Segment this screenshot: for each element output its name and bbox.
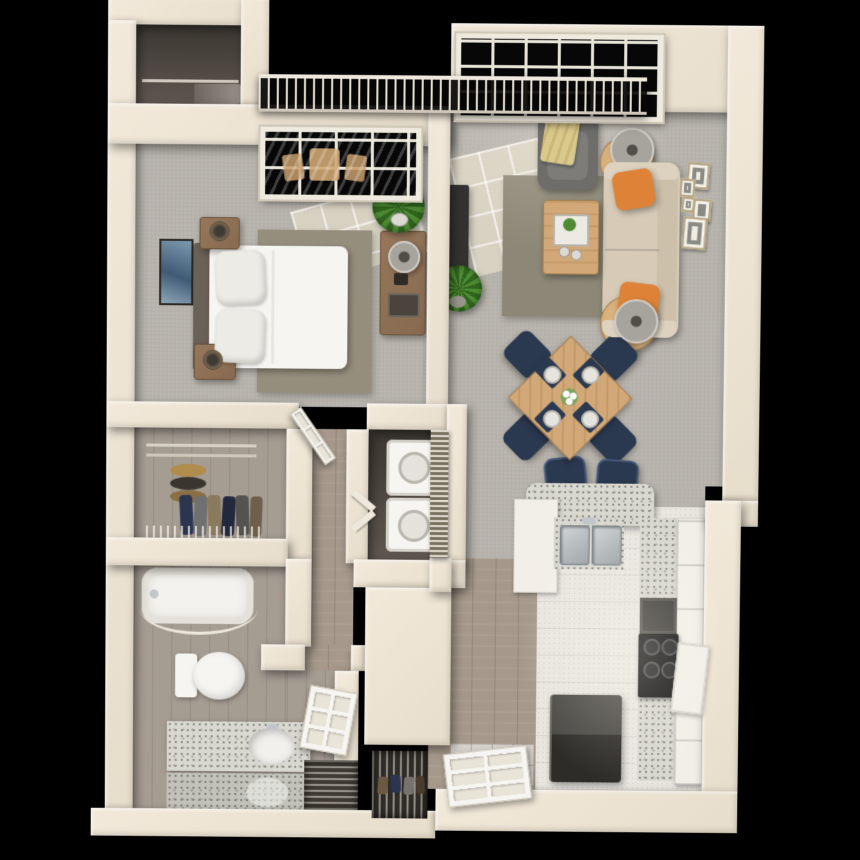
sink-basin-right	[591, 525, 621, 565]
wall-bedroom-bottom-right	[367, 403, 448, 430]
door-panel	[489, 767, 524, 782]
door-panel	[329, 714, 347, 731]
nook-shelf-item	[194, 84, 240, 105]
nightstand-lamp-bottom	[203, 350, 223, 370]
coffee-table-plant	[563, 218, 576, 231]
shoe-pair-1	[377, 776, 388, 795]
vanity-mirror-reflection	[166, 773, 310, 812]
hall-floor-bathdoor	[305, 645, 351, 673]
plate-ne	[581, 366, 599, 384]
door-panel	[453, 786, 488, 801]
nightstand-lamp-top	[210, 221, 230, 241]
door-panel	[326, 732, 344, 749]
hat-stack-2	[170, 477, 206, 490]
wall-laundry-right	[446, 404, 467, 566]
dresser-decor-box	[394, 273, 408, 285]
accent-pillow-north	[611, 167, 657, 211]
shoe-pair-3	[403, 776, 414, 794]
shoe-pair-2	[390, 774, 401, 792]
stove-burner-3	[643, 662, 660, 679]
gallery-frame-2	[679, 178, 695, 197]
range-hood	[640, 598, 677, 634]
wall-closet-right	[286, 429, 313, 561]
vanity-faucet	[267, 724, 279, 730]
bed-pillow-top	[214, 249, 267, 305]
render-canvas	[0, 0, 860, 860]
door-panel	[306, 728, 324, 745]
door-panel	[450, 756, 485, 771]
wall-bathroom-right-upper	[285, 559, 312, 647]
wall-bedroom-bottom-left	[106, 401, 298, 429]
dresser-tray	[388, 293, 420, 317]
door-panel	[451, 771, 486, 786]
shoe-pair-4	[415, 776, 425, 794]
door-panel	[491, 782, 526, 797]
hall-floor-mid	[311, 559, 354, 647]
bedroom-window	[260, 127, 421, 201]
bedroom-plant-pot	[390, 213, 408, 227]
gallery-frame-5	[681, 216, 708, 250]
hat-stack-1	[170, 464, 206, 477]
laundry-louver-door	[430, 430, 449, 558]
sofa-back-cushions	[656, 168, 678, 331]
wall-hall-stub	[429, 558, 451, 592]
utility-closet-louver	[304, 760, 358, 810]
washer-door	[398, 452, 430, 484]
vanity-sink	[248, 728, 294, 764]
front-door	[443, 745, 532, 808]
refrigerator	[549, 695, 622, 783]
balcony-railing	[259, 74, 648, 115]
toilet-bowl	[193, 652, 245, 700]
wall-outer-right-upper	[722, 26, 764, 501]
wall-bathroom-top	[106, 537, 288, 567]
wall-bathdoor-jamb-left	[261, 644, 305, 670]
dresser-lamp	[388, 241, 420, 273]
door-panel	[487, 752, 522, 767]
sink-basin-left	[559, 525, 589, 565]
wall-center-block	[364, 587, 451, 745]
wall-bedroom-living-divider	[426, 106, 451, 430]
wall-bathdoor-jamb-right	[351, 645, 365, 671]
dryer-door	[398, 510, 430, 542]
plate-se	[581, 410, 599, 428]
door-panel	[332, 695, 350, 712]
counter-end-panel	[513, 499, 558, 593]
flower-centerpiece	[559, 387, 579, 407]
door-panel	[310, 710, 328, 727]
kitchen-faucet	[582, 517, 596, 524]
living-plant-pot	[450, 296, 466, 308]
tub-faucet	[150, 589, 159, 598]
window-slat-reflections	[265, 132, 416, 196]
plate-nw	[543, 366, 561, 384]
bedroom-wall-art	[159, 239, 193, 306]
door-panel	[313, 692, 331, 709]
plate-sw	[543, 410, 561, 428]
stove-burner-1	[643, 639, 660, 656]
coffee-table-plate-1	[559, 246, 570, 257]
floor-plan	[0, 0, 860, 860]
coffee-table-plate-2	[571, 249, 582, 260]
mirror-sink-reflection	[246, 777, 288, 807]
